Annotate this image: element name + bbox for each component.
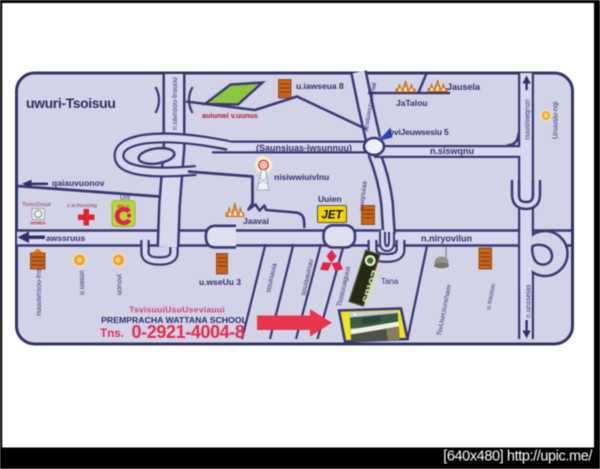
- svg-text:n.uivnsou-lnsuou: n.uivnsou-lnsuou: [172, 77, 179, 130]
- svg-text:0-2921-4004-8: 0-2921-4004-8: [132, 322, 245, 342]
- svg-text:auiunwi v.uunus: auiunwi v.uunus: [202, 111, 258, 120]
- svg-text:TsosuDouai: TsosuDouai: [22, 202, 51, 208]
- svg-text:Unuusiu-nqi: Unuusiu-nqi: [553, 101, 560, 139]
- svg-text:nisiwwiuivlnu: nisiwwiuivlnu: [274, 172, 329, 182]
- svg-text:nuuuivnsou-lns: nuuuivnsou-lns: [36, 268, 43, 316]
- svg-text:uwuri-Tsoisuu: uwuri-Tsoisuu: [26, 95, 115, 111]
- svg-text:Tana: Tana: [381, 277, 399, 286]
- svg-text:[640x480] http://upic.me/: [640x480] http://upic.me/: [443, 449, 593, 465]
- svg-text:awssruus: awssruus: [46, 233, 85, 243]
- svg-text:Uuien: Uuien: [318, 194, 342, 204]
- svg-text:Jausela: Jausela: [447, 82, 481, 92]
- svg-text:u.iawseua 8: u.iawseua 8: [296, 81, 344, 91]
- svg-text:s.w.inuusiag: s.w.inuusiag: [67, 203, 97, 209]
- svg-text:n.siswqnu: n.siswqnu: [430, 146, 474, 156]
- svg-text:JET: JET: [321, 210, 343, 222]
- svg-text:uonovi: uonovi: [117, 274, 124, 295]
- svg-text:u.wseUu 3: u.wseUu 3: [199, 277, 241, 287]
- svg-text:Tns.: Tns.: [100, 328, 124, 340]
- svg-text:JaTalou: JaTalou: [396, 98, 428, 108]
- svg-text:n.unsseias: n.unsseias: [526, 284, 533, 318]
- svg-text:oviJeuwsesiu 5: oviJeuwsesiu 5: [389, 127, 449, 137]
- svg-text:n.niryovilun: n.niryovilun: [421, 234, 472, 244]
- svg-text:(Saunsiuas-iwsunnuu): (Saunsiuas-iwsunnuu): [256, 143, 352, 153]
- svg-text:HONDA: HONDA: [30, 221, 45, 226]
- svg-text:TsvisuuiUsuUseviauui: TsvisuuiUsuUseviauui: [129, 305, 225, 315]
- svg-text:Jaavai: Jaavai: [243, 216, 269, 226]
- svg-text:nuusiswqnun: nuusiswqnun: [525, 99, 532, 140]
- svg-text:qaiauvuonov: qaiauvuonov: [52, 178, 105, 188]
- svg-text:Unr: Unr: [120, 195, 131, 202]
- svg-text:u.uasun: u.uasun: [79, 270, 86, 295]
